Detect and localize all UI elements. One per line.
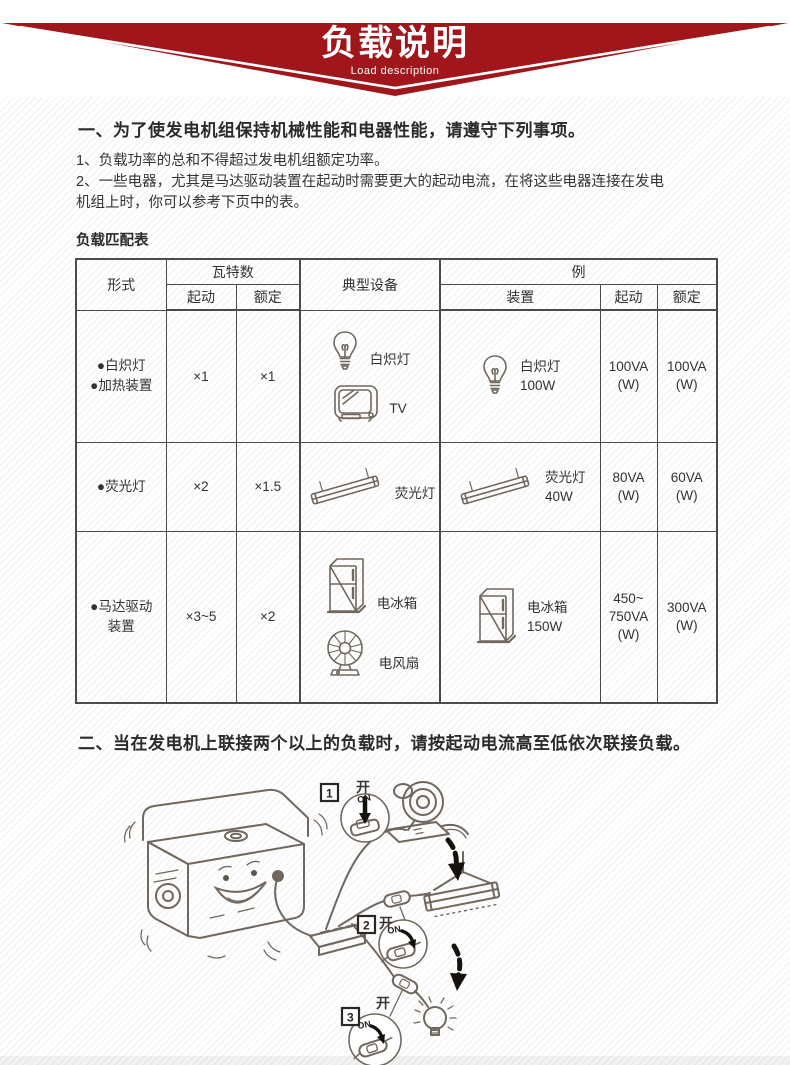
type-line: 装置 bbox=[79, 617, 164, 637]
tv-icon bbox=[333, 384, 379, 422]
fluorescent-icon bbox=[305, 466, 385, 508]
type-line: ●白炽灯 bbox=[79, 356, 164, 376]
typical-cell: 荧光灯 bbox=[300, 442, 440, 531]
switch-open-label: 开 bbox=[356, 779, 370, 795]
page-title: 负载说明 bbox=[0, 24, 790, 64]
banner-text: 负载说明 Load description bbox=[0, 24, 790, 77]
example-device-cell: 电冰箱 150W bbox=[440, 531, 600, 703]
section1-item-2: 2、一些电器，尤其是马达驱动装置在起动时需要更大的起动电流，在将这些电器连接在发… bbox=[76, 172, 676, 214]
type-cell: ●马达驱动 装置 bbox=[76, 531, 166, 703]
spotlight-drawing bbox=[386, 782, 468, 842]
power-cables bbox=[275, 829, 430, 1007]
col-header-ex-start: 起动 bbox=[600, 285, 657, 311]
load-description-page: 负载说明 Load description 一、为了使发电机组保持机械性能和电器… bbox=[0, 0, 790, 1065]
example-start-cell: 100VA (W) bbox=[600, 310, 657, 442]
example-rated-cell: 300VA (W) bbox=[657, 531, 717, 703]
start-factor-cell: ×2 bbox=[166, 442, 236, 531]
switch-bubble-3: ON 3 开 bbox=[342, 995, 401, 1065]
table-row-incandescent: ●白炽灯 ●加热装置 ×1 ×1 白炽灯 bbox=[76, 310, 717, 442]
start-factor-cell: ×3~5 bbox=[166, 531, 236, 703]
example-device-name: 电冰箱 bbox=[527, 598, 568, 617]
page-banner: 负载说明 Load description bbox=[0, 0, 790, 100]
col-header-start: 起动 bbox=[166, 285, 236, 311]
type-line: ●加热装置 bbox=[79, 376, 164, 396]
type-cell: ●白炽灯 ●加热装置 bbox=[76, 310, 166, 442]
typical-cell: 白炽灯 TV bbox=[300, 310, 440, 442]
example-device-watt: 150W bbox=[527, 617, 568, 636]
example-rated-cell: 100VA (W) bbox=[657, 310, 717, 442]
sequence-arrows bbox=[448, 840, 467, 991]
example-device-name: 荧光灯 bbox=[545, 468, 586, 487]
example-device-name: 白炽灯 bbox=[520, 357, 561, 376]
hanging-bulb-drawing bbox=[414, 997, 456, 1035]
switch-open-label: 开 bbox=[376, 995, 390, 1011]
type-cell: ●荧光灯 bbox=[76, 442, 166, 531]
illustration-canvas: ON 1 开 ON 2 开 bbox=[118, 778, 538, 1065]
generator-face bbox=[216, 861, 266, 902]
load-table-label: 负载匹配表 bbox=[76, 229, 149, 250]
type-line: ●马达驱动 bbox=[79, 597, 164, 617]
rated-factor-cell: ×1 bbox=[236, 310, 300, 442]
example-device-cell: 荧光灯 40W bbox=[440, 442, 600, 531]
bulb-icon bbox=[330, 330, 360, 374]
example-device-watt: 40W bbox=[545, 487, 586, 506]
start-factor-cell: ×1 bbox=[166, 310, 236, 442]
col-header-example: 例 bbox=[440, 259, 717, 285]
step-number: 2 bbox=[363, 919, 370, 933]
rated-factor-cell: ×2 bbox=[236, 531, 300, 703]
typical-label: 白炽灯 bbox=[370, 348, 411, 374]
table-row-motor: ●马达驱动 装置 ×3~5 ×2 电冰箱 bbox=[76, 531, 717, 703]
type-line: ●荧光灯 bbox=[79, 477, 164, 497]
step-number: 3 bbox=[347, 1011, 354, 1025]
section2-heading: 二、当在发电机上联接两个以上的负载时，请按起动电流高至低依次联接负载。 bbox=[78, 729, 758, 754]
example-rated-cell: 60VA (W) bbox=[657, 442, 717, 531]
step-number: 1 bbox=[326, 787, 333, 801]
fluorescent-icon bbox=[455, 466, 535, 508]
page-subtitle: Load description bbox=[0, 65, 790, 77]
load-matching-table: 形式 瓦特数 典型设备 例 起动 额定 装置 起动 额定 ●白炽灯 ●加热装置 … bbox=[75, 258, 718, 704]
example-device-cell: 白炽灯 100W bbox=[440, 310, 600, 442]
section1-heading: 一、为了使发电机组保持机械性能和电器性能，请遵守下列事项。 bbox=[78, 116, 586, 141]
table-row-fluorescent: ●荧光灯 ×2 ×1.5 荧光灯 bbox=[76, 442, 717, 531]
section1-item-1: 1、负载功率的总和不得超过发电机组额定功率。 bbox=[76, 151, 676, 172]
col-header-device: 装置 bbox=[440, 285, 600, 311]
example-start-cell: 80VA (W) bbox=[600, 442, 657, 531]
typical-label: 电风扇 bbox=[379, 652, 420, 678]
generator-connection-illustration: ON 1 开 ON 2 开 bbox=[118, 778, 538, 1065]
example-device-watt: 100W bbox=[520, 376, 561, 395]
col-header-rated: 额定 bbox=[236, 285, 300, 311]
fluorescent-fixture-drawing bbox=[424, 852, 501, 918]
typical-label: 荧光灯 bbox=[395, 482, 436, 508]
col-header-wattage: 瓦特数 bbox=[166, 259, 300, 285]
typical-label: TV bbox=[389, 401, 406, 422]
example-start-cell: 450~ 750VA (W) bbox=[600, 531, 657, 703]
fridge-icon bbox=[473, 586, 517, 648]
rated-factor-cell: ×1.5 bbox=[236, 442, 300, 531]
typical-cell: 电冰箱 电风扇 bbox=[300, 531, 440, 703]
fan-icon bbox=[321, 628, 369, 678]
col-header-typical: 典型设备 bbox=[300, 259, 440, 310]
col-header-ex-rated: 额定 bbox=[657, 285, 717, 311]
switch-open-label: 开 bbox=[379, 915, 393, 931]
fridge-icon bbox=[323, 556, 367, 618]
switch-bubble-1: ON 1 开 bbox=[321, 779, 389, 842]
col-header-type: 形式 bbox=[76, 259, 166, 310]
section1-items: 1、负载功率的总和不得超过发电机组额定功率。 2、一些电器，尤其是马达驱动装置在… bbox=[76, 151, 676, 214]
typical-label: 电冰箱 bbox=[377, 592, 418, 618]
bulb-icon bbox=[480, 354, 510, 398]
